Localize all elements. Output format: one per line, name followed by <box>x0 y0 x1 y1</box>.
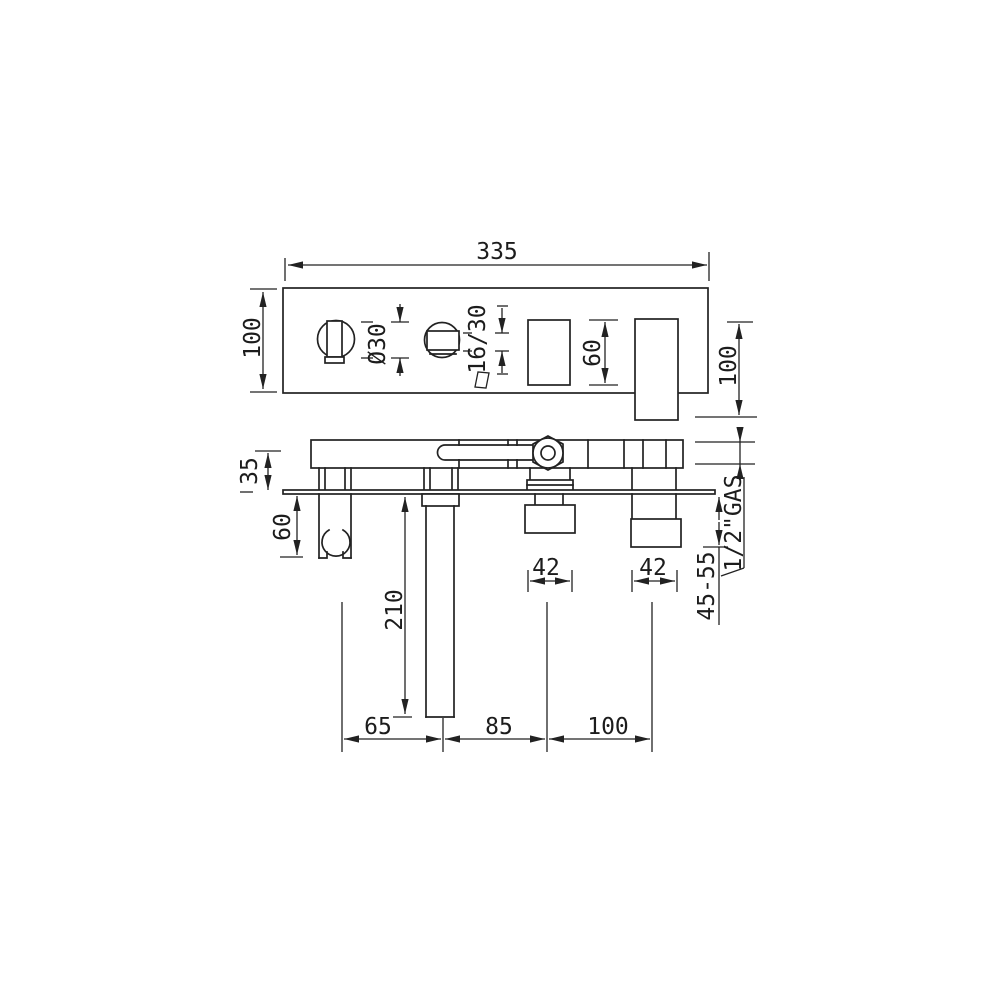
side-view-dimensions: 35 60 210 42 42 <box>237 427 755 752</box>
diverter-outlet <box>525 494 575 533</box>
holder-ring <box>322 530 350 556</box>
dim-plate-height: 100 <box>240 289 277 392</box>
wall-plate-side <box>283 490 715 494</box>
dim-text-outlet-width-right: 42 <box>639 555 667 581</box>
dim-text-plate-height: 100 <box>240 317 266 359</box>
dim-outlet-width-left: 42 <box>528 555 572 592</box>
dim-text-thread-size: 1/2"GAS <box>721 475 747 572</box>
dim-text-body-depth: 35 <box>237 457 263 485</box>
dim-text-handle-diameter: Ø30 <box>365 323 391 365</box>
dim-outlet-width-right: 42 <box>632 555 677 592</box>
dim-holder-drop: 60 <box>270 496 303 557</box>
dim-body-depth: 35 <box>237 451 281 492</box>
dim-text-holder-drop: 60 <box>270 513 296 541</box>
mounting-legs <box>319 468 676 490</box>
dim-text-spacing-mid: 85 <box>485 714 513 740</box>
supply-tube <box>422 494 459 717</box>
spout-front <box>635 319 678 420</box>
dim-text-spout-height: 100 <box>716 345 742 387</box>
technical-drawing-page: 335 100 Ø30 <box>0 0 1000 1000</box>
handshower-holder <box>319 494 351 558</box>
hose-union-outlet <box>631 494 681 547</box>
dim-text-overall-width: 335 <box>476 239 518 265</box>
dim-text-outlet-width-left: 42 <box>532 555 560 581</box>
function-opening <box>528 320 570 385</box>
dim-text-projection-range: 45-55 <box>694 551 720 620</box>
dim-text-spacing-right: 100 <box>587 714 629 740</box>
faucet-dimension-drawing: 335 100 Ø30 <box>0 0 1000 1000</box>
diverter-handle-knob <box>425 323 460 358</box>
dim-text-spout-drop: 210 <box>382 589 408 631</box>
dim-overall-width: 335 <box>285 239 709 281</box>
dim-spout-drop: 210 <box>382 497 412 717</box>
cartridge-stem <box>527 468 573 491</box>
dim-text-opening-height: 60 <box>580 339 606 367</box>
front-view <box>283 288 708 420</box>
dim-text-handle-slot: 16/30 <box>465 304 491 373</box>
dim-text-spacing-left: 65 <box>364 714 392 740</box>
